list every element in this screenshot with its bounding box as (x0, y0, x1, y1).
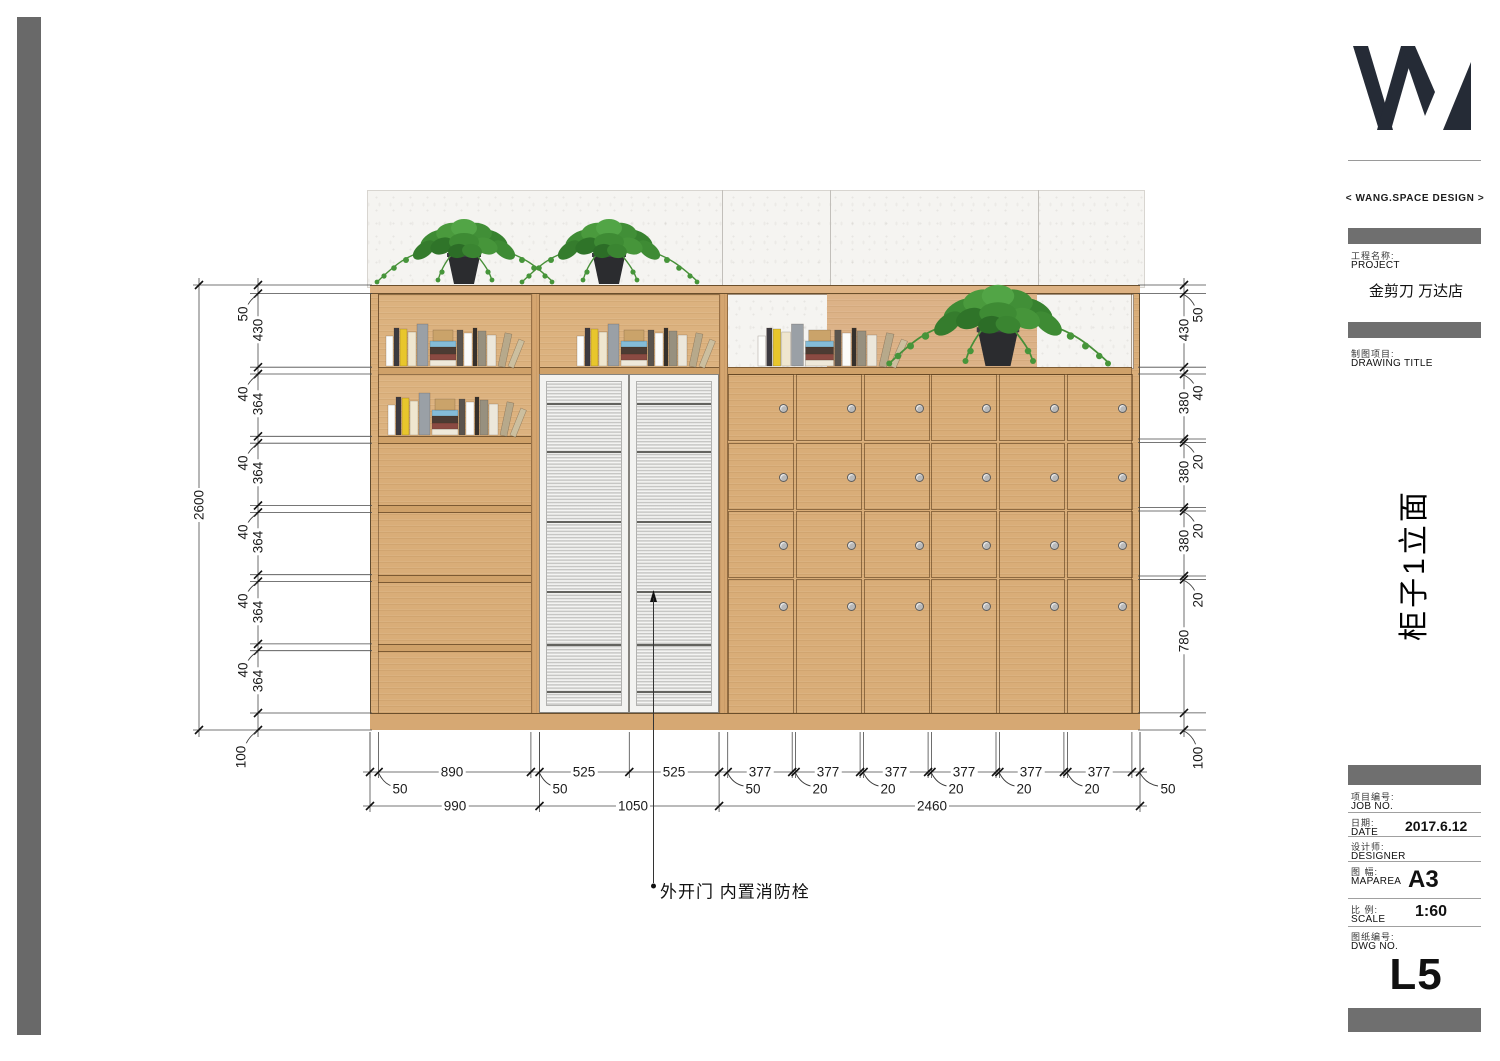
panel-edge-line (378, 294, 379, 713)
knob-icon (915, 404, 924, 413)
titleblock-rule (1348, 812, 1481, 813)
titleblock-divider (1348, 160, 1481, 161)
dim-label: 380 (1177, 390, 1191, 417)
dim-label: 364 (251, 460, 265, 487)
locker-door (728, 443, 794, 510)
louver-slats (547, 382, 621, 705)
locker-door (796, 511, 862, 578)
dwg-number: L5 (1352, 950, 1480, 1000)
cabinet-top-band (370, 285, 1140, 294)
locker-door (728, 579, 794, 715)
project-value: 金剪刀 万达店 (1352, 280, 1480, 301)
dim-label: 40 (236, 522, 250, 541)
knob-icon (779, 602, 788, 611)
locker-door (796, 443, 862, 510)
dim-label: 20 (1082, 782, 1101, 796)
knob-icon (1050, 473, 1059, 482)
knob-icon (847, 602, 856, 611)
knob-icon (779, 404, 788, 413)
dim-label: 20 (1014, 782, 1033, 796)
locker-door (931, 443, 997, 510)
knob-icon (1118, 473, 1127, 482)
dim-label: 40 (236, 660, 250, 679)
drawing-sheet: 2600 50 430 40 364 40 364 40 364 40 364 … (0, 0, 1500, 1061)
knob-icon (982, 473, 991, 482)
knob-icon (915, 473, 924, 482)
dim-label: 50 (550, 782, 569, 796)
shelf-board (378, 505, 531, 513)
knob-icon (1050, 404, 1059, 413)
locker-door (796, 374, 862, 441)
dim-label: 377 (951, 765, 978, 779)
dim-label: 50 (743, 782, 762, 796)
page-margin-bar (17, 17, 41, 1035)
shelf-books-left-2 (378, 374, 533, 438)
knob-icon (1118, 541, 1127, 550)
locker-door (1067, 511, 1133, 578)
locker-door (728, 374, 794, 441)
wall-joint-line (1038, 190, 1039, 285)
locker-door (999, 374, 1065, 441)
dim-label: 990 (442, 799, 469, 813)
dim-label: 525 (571, 765, 598, 779)
dim-label: 890 (439, 765, 466, 779)
dim-label: 20 (1191, 452, 1205, 471)
louver-slats (637, 382, 711, 705)
locker-door (931, 511, 997, 578)
locker-door (728, 511, 794, 578)
cabinet-base-band (370, 713, 1140, 730)
dim-label: 377 (747, 765, 774, 779)
dim-label: 364 (251, 529, 265, 556)
locker-door (999, 579, 1065, 715)
titleblock-bar (1348, 228, 1481, 244)
shelf-board (378, 436, 531, 444)
dim-label: 380 (1177, 528, 1191, 555)
knob-icon (779, 541, 788, 550)
shelf-open-left (378, 294, 533, 369)
dim-label: 20 (1191, 590, 1205, 609)
locker-door (931, 579, 997, 715)
knob-icon (915, 602, 924, 611)
dim-label: 100 (234, 744, 248, 771)
knob-icon (1118, 404, 1127, 413)
field-label-en: DRAWING TITLE (1351, 358, 1433, 369)
dim-label: 2460 (915, 799, 949, 813)
shelf-board (378, 644, 531, 652)
locker-door (796, 579, 862, 715)
divider-strip (719, 293, 728, 713)
drawing-title: 柜子1立面 (1389, 489, 1433, 641)
knob-icon (915, 541, 924, 550)
dim-label: 1050 (616, 799, 650, 813)
dim-label: 364 (251, 391, 265, 418)
dim-label: 20 (810, 782, 829, 796)
dim-label: 377 (1086, 765, 1113, 779)
dim-label: 50 (1191, 305, 1205, 324)
door-annotation: 外开门 内置消防栓 (660, 878, 810, 903)
wall-background (367, 190, 1145, 288)
wall-joint-line (722, 190, 723, 285)
field-label-en: PROJECT (1351, 260, 1400, 271)
dim-label: 40 (1191, 383, 1205, 402)
titleblock-rule (1348, 836, 1481, 837)
titleblock-rule (1348, 926, 1481, 927)
shelf-open-middle (539, 294, 721, 369)
dim-label: 50 (390, 782, 409, 796)
field-label-en: JOB NO. (1351, 801, 1393, 812)
louver-door-left (539, 374, 629, 713)
locker-door (1067, 374, 1133, 441)
knob-icon (1118, 602, 1127, 611)
knob-icon (847, 541, 856, 550)
titleblock-bar (1348, 1008, 1481, 1032)
locker-door (931, 374, 997, 441)
louver-doors (539, 374, 719, 713)
dim-label: 40 (236, 384, 250, 403)
date-value: 2017.6.12 (1405, 818, 1467, 834)
dim-label: 380 (1177, 459, 1191, 486)
knob-icon (1050, 541, 1059, 550)
dim-label: 525 (661, 765, 688, 779)
dim-label: 364 (251, 668, 265, 695)
dim-label: 20 (1191, 521, 1205, 540)
titleblock-rule (1348, 861, 1481, 862)
wall-joint-line (830, 190, 831, 285)
locker-door (999, 443, 1065, 510)
dim-label: 50 (236, 304, 250, 323)
knob-icon (982, 602, 991, 611)
titleblock-bar (1348, 322, 1481, 338)
shelf-right-wood-back (827, 294, 1037, 367)
knob-icon (982, 541, 991, 550)
dim-label: 377 (883, 765, 910, 779)
knob-icon (847, 473, 856, 482)
dim-label: 20 (878, 782, 897, 796)
dim-label: 40 (236, 453, 250, 472)
maparea-value: A3 (1408, 866, 1439, 894)
dim-label: 377 (815, 765, 842, 779)
knob-icon (982, 404, 991, 413)
dim-label: 100 (1191, 745, 1205, 772)
scale-value: 1:60 (1415, 903, 1447, 921)
dim-label: 430 (251, 317, 265, 344)
locker-door (864, 374, 930, 441)
company-logo-icon (1353, 46, 1473, 130)
knob-icon (779, 473, 788, 482)
dim-label: 50 (1158, 782, 1177, 796)
louver-door-right (629, 374, 719, 713)
dim-label: 40 (236, 591, 250, 610)
dim-label: 2600 (192, 488, 206, 522)
locker-door (864, 511, 930, 578)
dim-label: 20 (946, 782, 965, 796)
shelf-board (378, 575, 531, 583)
dim-label: 377 (1018, 765, 1045, 779)
titleblock-bar (1348, 765, 1481, 785)
locker-door (864, 579, 930, 715)
locker-door (1067, 443, 1133, 510)
field-label-en: MAPAREA (1351, 876, 1401, 887)
locker-door (999, 511, 1065, 578)
field-label-en: SCALE (1351, 914, 1385, 925)
knob-icon (1050, 602, 1059, 611)
dim-label: 364 (251, 599, 265, 626)
dim-label: 780 (1177, 628, 1191, 655)
titleblock-rule (1348, 898, 1481, 899)
knob-icon (847, 404, 856, 413)
locker-door (864, 443, 930, 510)
locker-door (1067, 579, 1133, 715)
dim-label: 430 (1177, 317, 1191, 344)
brand-name: < WANG.SPACE DESIGN > (1320, 193, 1500, 204)
